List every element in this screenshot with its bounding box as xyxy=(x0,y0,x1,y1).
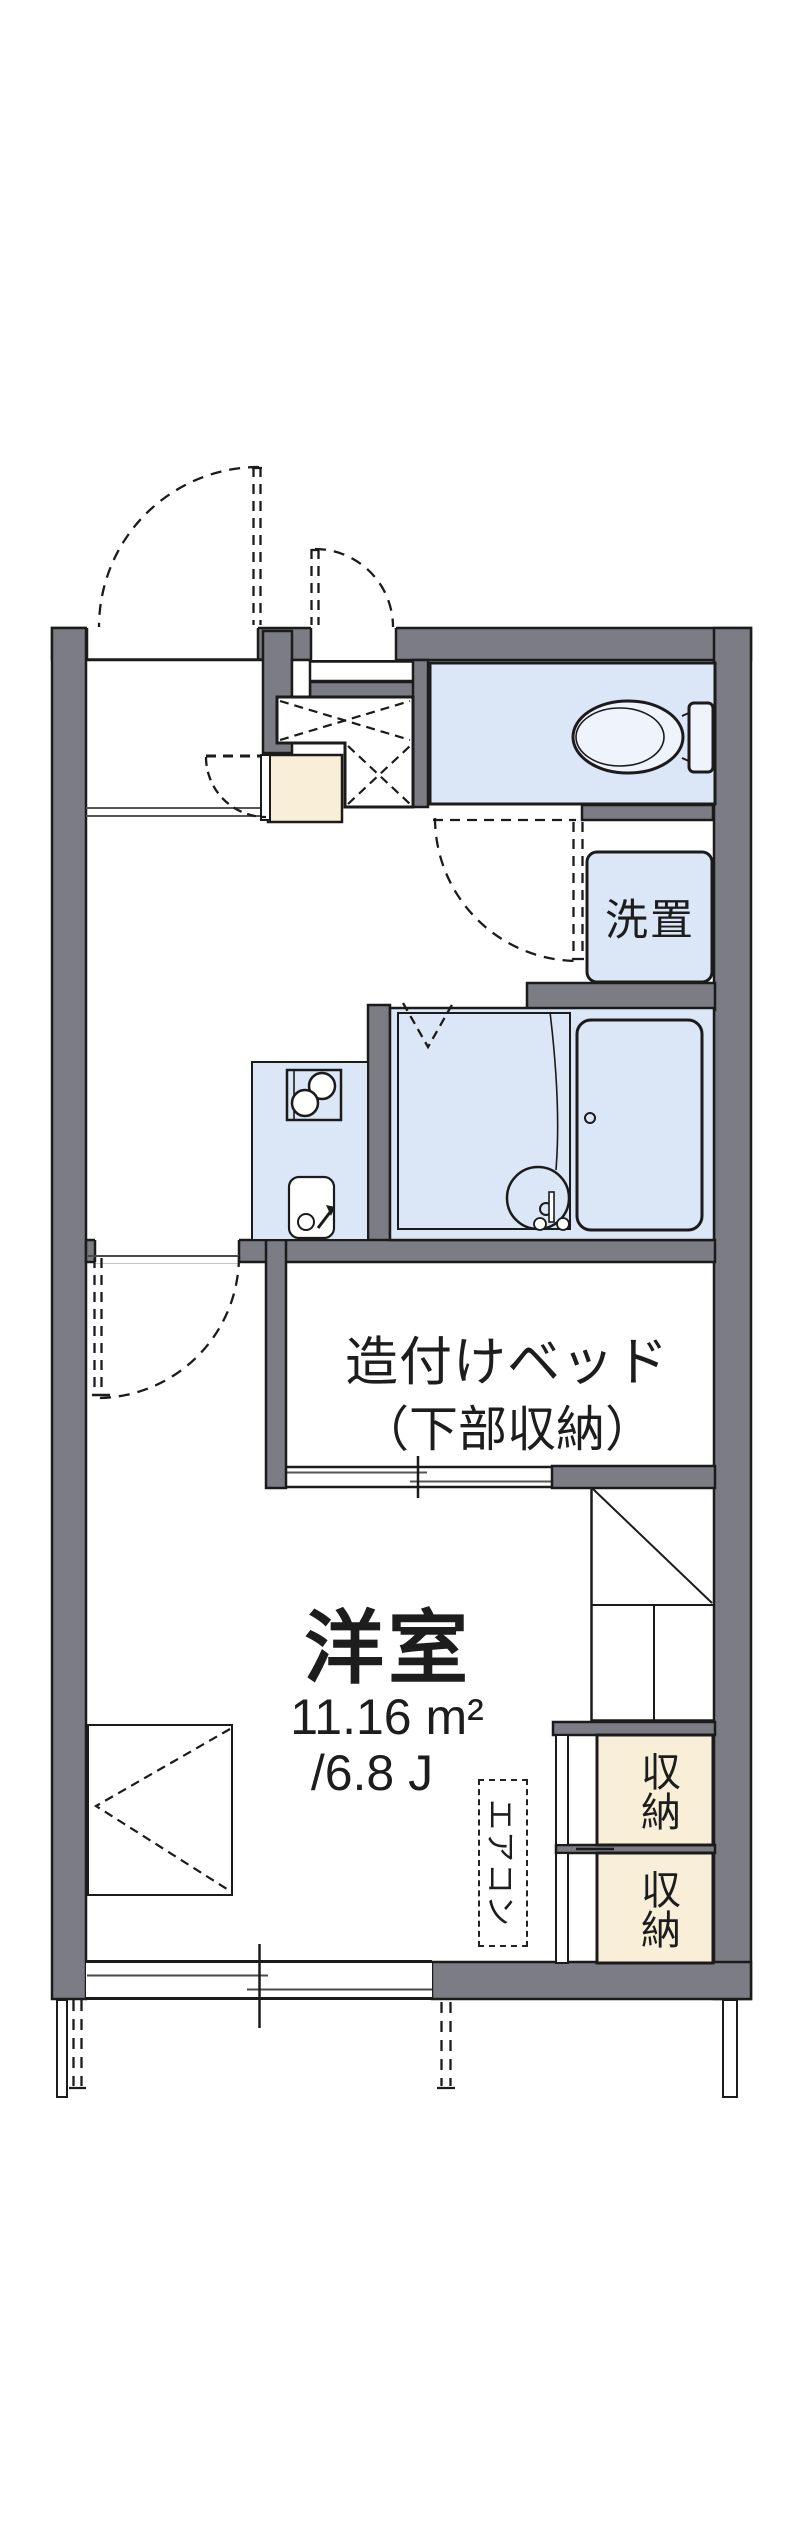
bed-sliding-doors xyxy=(286,1456,552,1498)
washing-machine-label: 洗置 xyxy=(588,852,712,982)
closet-door-leaf xyxy=(261,755,270,820)
wall-closet-storage-divider xyxy=(553,1722,715,1735)
balcony-posts xyxy=(57,2000,737,2097)
entrance-door-swing xyxy=(99,467,259,627)
floorplan-page: 洋室 11.16 m² /6.8 J 造付けベッド （下部収納） 洗置 収納 収… xyxy=(0,0,800,2541)
wall-toilet-washroom xyxy=(582,805,713,820)
wall-bed-left xyxy=(266,1240,286,1488)
wall-alcove-band xyxy=(310,682,428,697)
utility-door xyxy=(311,549,393,627)
wall-right xyxy=(714,628,751,1999)
opening-entrance xyxy=(87,624,258,660)
folding-table xyxy=(88,1725,232,1895)
room-area-tatami: /6.8 J xyxy=(262,1744,482,1802)
opening-room-door xyxy=(95,1238,239,1263)
room-door-swing xyxy=(97,1256,239,1398)
wall-bottom-right xyxy=(432,1962,751,1999)
bed-sublabel: （下部収納） xyxy=(297,1390,717,1461)
aircon-label: エアコン xyxy=(481,1799,526,1927)
aircon-marker: エアコン xyxy=(478,1779,528,1947)
opening-toilet-door xyxy=(432,807,578,819)
toilet-door xyxy=(433,818,584,961)
bed-label: 造付けベッド xyxy=(297,1320,717,1396)
wall-bed-bottom-right xyxy=(552,1466,715,1488)
utility-door-swing xyxy=(315,549,393,627)
room-label-western: 洋室 xyxy=(288,1584,488,1700)
toilet-tank xyxy=(689,703,713,772)
storage-label-upper: 収納 xyxy=(632,1746,678,1836)
entrance-door xyxy=(99,467,262,627)
wall-toilet-left-chunk xyxy=(413,660,428,807)
opening-utility-door xyxy=(311,624,396,660)
wall-bath-left xyxy=(368,1005,390,1257)
room-door xyxy=(92,1256,239,1398)
wall-washroom-bath xyxy=(527,983,715,1010)
floorplan-drawing xyxy=(0,0,800,2541)
storage-label-lower: 収納 xyxy=(632,1864,678,1954)
side-closet xyxy=(592,1488,714,1722)
toilet-door-swing xyxy=(435,818,578,961)
entrance-closet xyxy=(268,755,342,822)
room-area-sqm: 11.16 m² xyxy=(272,1688,502,1746)
wall-left xyxy=(52,628,86,1999)
bathtub-icon xyxy=(577,1020,702,1230)
entrance-area xyxy=(86,755,270,820)
closet-shelf-diagonal xyxy=(593,1489,712,1603)
